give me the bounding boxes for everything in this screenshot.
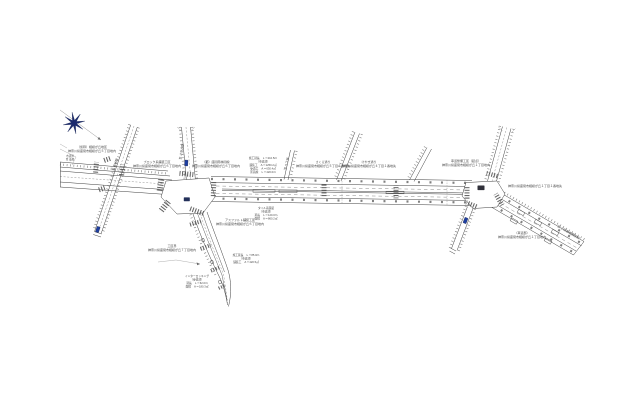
- map-label-works-summary-below-road: タイル系舗装（車道部）延長 Ｌ＝120.0ｍ面積 Ａ＝860.2㎡: [255, 206, 278, 221]
- map-label-label-east-address: 神奈川県座間市相模が丘１丁目１番地先: [508, 183, 562, 188]
- map-label-label-se-road: （車道部）神奈川県座間市相模が丘１丁目地内: [498, 230, 546, 239]
- map-label-works-summary-south-east: 施工延長 Ｌ＝85.0ｍ（車道部）舗装工 Ａ＝420.5㎡: [233, 253, 260, 264]
- southeast-road: [490, 191, 586, 255]
- map-label-works-summary-center: 施工延長 Ｌ＝210.5ｍ（車道部）舗装工 Ａ＝1250.2㎡歩道工 Ａ＝630…: [249, 156, 278, 174]
- map-label-label-left-stub: 市道界至 東原: [66, 154, 75, 161]
- map-label-label-north-approach: （都）座間南林間線神奈川県座間市相模が丘６丁目地内: [192, 159, 240, 168]
- north-star-compass-icon: [60, 110, 101, 140]
- left-diagonal-road: [93, 124, 139, 237]
- roadside-sign-marker: [463, 217, 468, 224]
- minor-branch-roads: [284, 132, 432, 182]
- map-label-works-summary-south-west: インターロッキング（歩道部）延長 Ｌ＝62.0ｍ面積 Ａ＝180.3㎡: [185, 274, 209, 289]
- roadside-sign-marker: [185, 160, 189, 166]
- map-label-label-branch-keyaki: けやき通り神奈川県座間市相模が丘４丁目１番地先: [342, 159, 396, 168]
- southwest-road-end: [450, 206, 475, 254]
- intersection-name-plate: [184, 197, 190, 201]
- road-improvement-plan-page: （仮称）相模が丘地区神奈川県座間市相模が丘５丁目地内ブロック系舗装工区神奈川県座…: [0, 0, 640, 416]
- map-label-label-west-block: ブロック系舗装工区神奈川県座間市相模が丘６丁目地内: [133, 159, 181, 168]
- main-road-east: [211, 177, 472, 207]
- map-label-dest-branch-1: 至 ５丁目: [283, 157, 290, 170]
- map-label-label-ward-boundary: 工区界神奈川県座間市相模が丘７丁目地内: [148, 244, 196, 252]
- map-label-dest-se: 至 小田急相模原駅: [557, 223, 581, 240]
- map-label-plan-note-northwest: （仮称）相模が丘地区神奈川県座間市相模が丘５丁目地内: [68, 144, 116, 153]
- intersection-name-plate: [478, 186, 485, 191]
- south-branch-road: [158, 212, 231, 307]
- site-plan-drawing: （仮称）相模が丘地区神奈川県座間市相模が丘５丁目地内ブロック系舗装工区神奈川県座…: [0, 0, 640, 416]
- center-intersection: [161, 178, 215, 214]
- map-label-label-east-works: 車道整備工区（起点）神奈川県座間市相模が丘１丁目地内: [442, 158, 490, 167]
- crosswalks: [93, 156, 504, 290]
